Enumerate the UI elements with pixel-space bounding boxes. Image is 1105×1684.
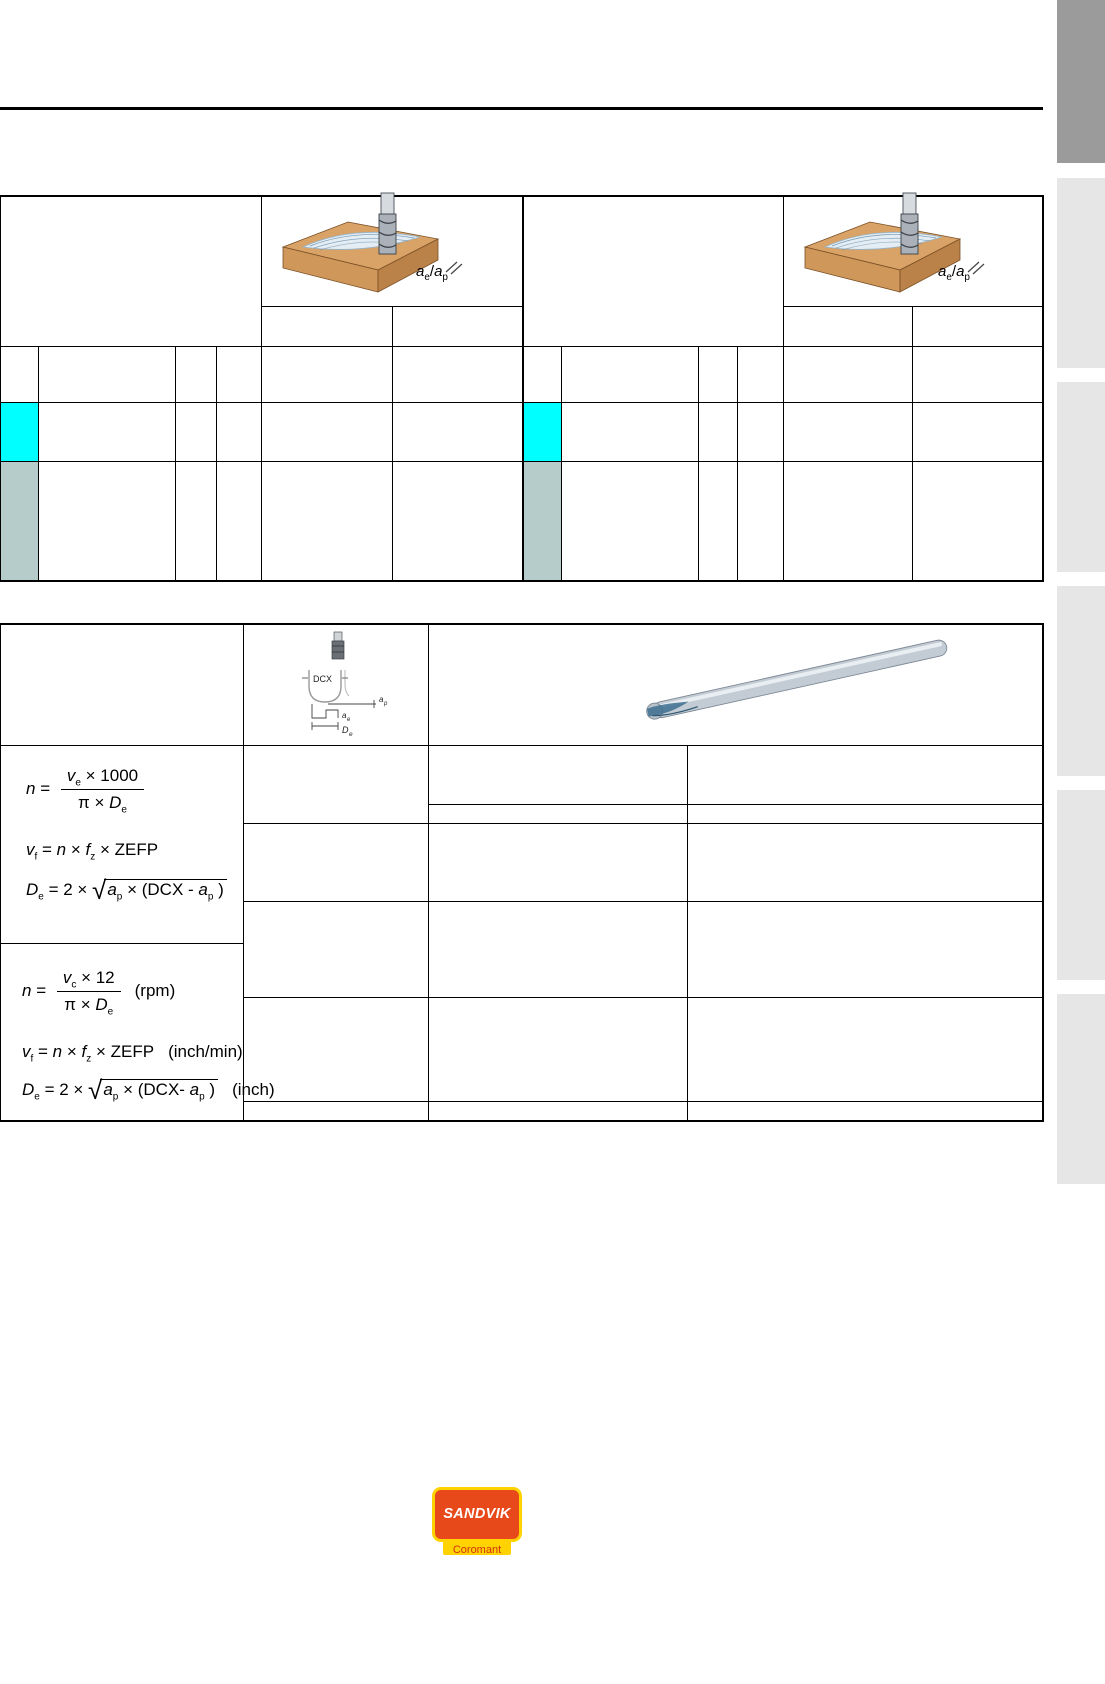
formula-text: a <box>107 880 116 899</box>
table-grid-line <box>243 623 244 1122</box>
formula-text: = 2 × <box>44 880 92 899</box>
de-label: D <box>342 725 349 735</box>
table-grid-line <box>687 745 688 1122</box>
radicand: ap × (DCX - ap ) <box>104 879 227 899</box>
logo-shield: SANDVIK <box>432 1487 522 1542</box>
formula-text: × <box>66 840 85 859</box>
ae-ap-label-right: ae/ap <box>938 263 970 280</box>
tool-highlight <box>658 642 942 709</box>
dcx-label: DCX <box>313 674 332 684</box>
table1-teal-cell-left <box>0 462 38 580</box>
fraction: vc × 12π × De <box>57 968 121 1015</box>
formula-text: = 2 × <box>40 1080 88 1099</box>
formula-unit: (rpm) <box>135 981 176 1000</box>
formula-sub: e <box>108 1006 114 1017</box>
formula-text: π × <box>64 995 95 1014</box>
formula-text: = <box>35 779 54 798</box>
formula-text: a <box>198 880 207 899</box>
formula-text: D <box>22 1080 34 1099</box>
table-grid-line <box>243 901 1043 902</box>
formula-sub: e <box>121 804 127 815</box>
tool-shank <box>381 193 394 215</box>
table1-cyan-cell-right <box>522 403 561 461</box>
dimension-leader <box>446 262 462 274</box>
table-grid-line <box>0 745 1043 746</box>
formula-text: × <box>62 1042 81 1061</box>
logo-banner: Coromant <box>443 1540 511 1555</box>
effective-diameter-diagram: DCX a p a e D e <box>268 626 403 744</box>
formula-text: n <box>57 840 66 859</box>
formula-text: × (DCX- <box>118 1080 189 1099</box>
table-grid-line <box>243 1101 1043 1102</box>
formula-unit: (inch/min) <box>168 1042 243 1061</box>
table-grid-line <box>261 195 262 582</box>
formula-text: a <box>190 1080 199 1099</box>
formula-text: ) <box>205 1080 215 1099</box>
table-grid-line <box>912 306 913 582</box>
formula-text: ) <box>213 880 223 899</box>
logo-brand-text: SANDVIK <box>443 1506 510 1522</box>
step-dimension <box>312 704 338 718</box>
label-sub: p <box>442 272 448 283</box>
formula-effective-diameter-metric: De = 2 × √ap × (DCX - ap ) <box>26 880 241 900</box>
table-grid-line <box>698 346 699 582</box>
catalog-page: ae/ap ae/ap DCX <box>0 0 1105 1684</box>
fraction: ve × 1000π × De <box>61 766 144 813</box>
top-rule <box>0 107 1043 110</box>
mini-endmill-body <box>332 641 344 659</box>
table-grid-line <box>216 346 217 582</box>
formula-text: × 12 <box>76 968 114 987</box>
formula-text: v <box>22 1042 31 1061</box>
formula-text: × 1000 <box>81 766 138 785</box>
sandvik-coromant-logo: SANDVIK Coromant <box>432 1487 522 1559</box>
formula-spindle-speed-metric: n = ve × 1000π × De <box>26 766 158 813</box>
table-grid-line <box>428 804 1043 805</box>
formula-feed-inch: vf = n × fz × ZEFP(inch/min) <box>22 1042 243 1062</box>
formula-text: × ZEFP <box>95 840 158 859</box>
formula-text: = <box>37 840 56 859</box>
formula-text: π × <box>78 793 109 812</box>
table-grid-line <box>0 943 243 944</box>
ap-dimension-line <box>328 700 376 708</box>
logo-subbrand-text: Coromant <box>453 1544 501 1556</box>
end-mill-groove-illustration-right <box>800 192 1000 300</box>
formula-spindle-speed-inch: n = vc × 12π × De(rpm) <box>22 968 175 1015</box>
formula-text: n <box>53 1042 62 1061</box>
sidebar-tab <box>1057 586 1105 776</box>
table-grid-line <box>243 997 1043 998</box>
end-mill-groove-illustration-left <box>278 192 478 300</box>
table-grid-line <box>522 195 524 582</box>
table-grid-line <box>175 346 176 582</box>
table1-teal-cell-right <box>522 462 561 580</box>
table-grid-line <box>1042 195 1044 582</box>
sidebar-tab <box>1057 178 1105 368</box>
formula-text: v <box>26 840 35 859</box>
radicand: ap × (DCX- ap ) <box>100 1079 218 1099</box>
formula-text: = <box>33 1042 52 1061</box>
ap-label-sub: p <box>383 701 388 707</box>
formula-text: a <box>103 1080 112 1099</box>
formula-feed-metric: vf = n × fz × ZEFP <box>26 840 172 860</box>
table-grid-line <box>243 823 1043 824</box>
sidebar-tab <box>1057 994 1105 1184</box>
dimension-leader <box>968 262 984 274</box>
formula-text: D <box>109 793 121 812</box>
table-grid-line <box>783 195 784 582</box>
table1-cyan-cell-left <box>0 403 38 461</box>
tool-shank <box>903 193 916 215</box>
formula-text: × (DCX - <box>122 880 198 899</box>
sidebar-tab-active <box>1057 0 1105 163</box>
table-grid-line <box>737 346 738 582</box>
label-sub: p <box>964 272 970 283</box>
ae-ap-label-left: ae/ap <box>416 263 448 280</box>
formula-text: D <box>26 880 38 899</box>
formula-unit: (inch) <box>232 1080 275 1099</box>
ball-nose-endmill-illustration <box>580 624 1000 742</box>
formula-text: = <box>31 981 50 1000</box>
sidebar-tab <box>1057 790 1105 980</box>
table-grid-line <box>561 346 562 582</box>
formula-text: × ZEFP <box>91 1042 154 1061</box>
ae-label-sub: e <box>347 717 351 723</box>
table-grid-line <box>0 195 1 582</box>
formula-text: D <box>95 995 107 1014</box>
table-grid-line <box>38 346 39 582</box>
table-grid-line <box>1042 623 1044 1122</box>
sidebar-tab <box>1057 382 1105 572</box>
mini-endmill-shank <box>334 632 342 641</box>
formula-effective-diameter-inch: De = 2 × √ap × (DCX- ap )(inch) <box>22 1080 275 1100</box>
table-grid-line <box>783 306 1043 307</box>
table-grid-line <box>0 623 1 1122</box>
table-grid-line <box>428 623 429 1122</box>
table-grid-line <box>392 306 393 582</box>
de-dimension-line <box>312 722 338 730</box>
table-grid-line <box>0 1120 1043 1122</box>
de-label-sub: e <box>349 731 353 738</box>
